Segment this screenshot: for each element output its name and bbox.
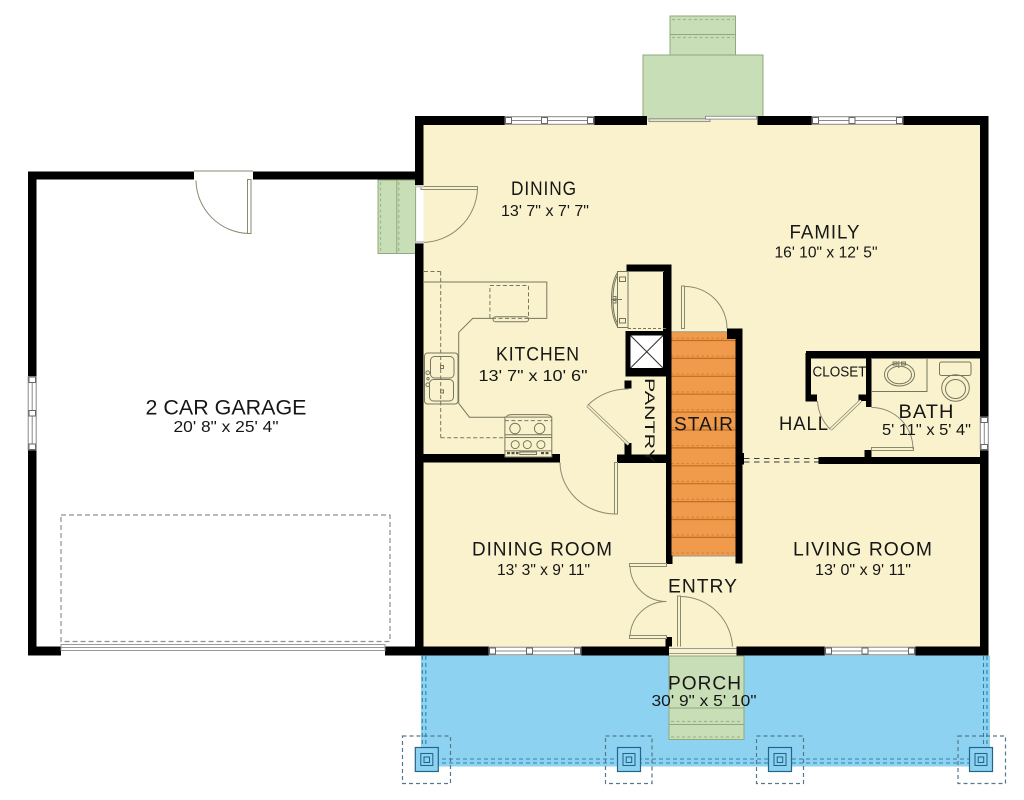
svg-text:16' 10" x 12' 5": 16' 10" x 12' 5" — [775, 245, 878, 262]
svg-text:PORCH: PORCH — [668, 674, 742, 695]
svg-text:2 CAR GARAGE: 2 CAR GARAGE — [146, 396, 307, 420]
svg-text:DINING: DINING — [511, 179, 577, 200]
svg-text:HALL: HALL — [779, 414, 829, 435]
svg-text:STAIR: STAIR — [674, 415, 734, 436]
svg-text:30' 9" x 5' 10": 30' 9" x 5' 10" — [652, 693, 757, 710]
svg-text:5' 11" x 5' 4": 5' 11" x 5' 4" — [882, 422, 971, 439]
svg-text:FAMILY: FAMILY — [790, 223, 861, 244]
svg-text:20' 8" x 25' 4": 20' 8" x 25' 4" — [174, 419, 279, 436]
svg-text:13' 0" x 9' 11": 13' 0" x 9' 11" — [815, 562, 911, 579]
svg-text:13' 7" x 10' 6": 13' 7" x 10' 6" — [479, 368, 588, 385]
svg-text:LIVING ROOM: LIVING ROOM — [793, 540, 933, 561]
svg-text:DINING ROOM: DINING ROOM — [472, 540, 613, 561]
svg-text:13' 3" x 9' 11": 13' 3" x 9' 11" — [497, 562, 590, 579]
svg-text:PANTRY: PANTRY — [642, 378, 658, 464]
svg-text:KITCHEN: KITCHEN — [496, 345, 580, 366]
svg-text:CLOSET: CLOSET — [813, 365, 867, 381]
svg-text:BATH: BATH — [899, 402, 955, 423]
svg-text:ENTRY: ENTRY — [668, 577, 738, 598]
svg-text:13' 7" x 7' 7": 13' 7" x 7' 7" — [501, 203, 589, 220]
